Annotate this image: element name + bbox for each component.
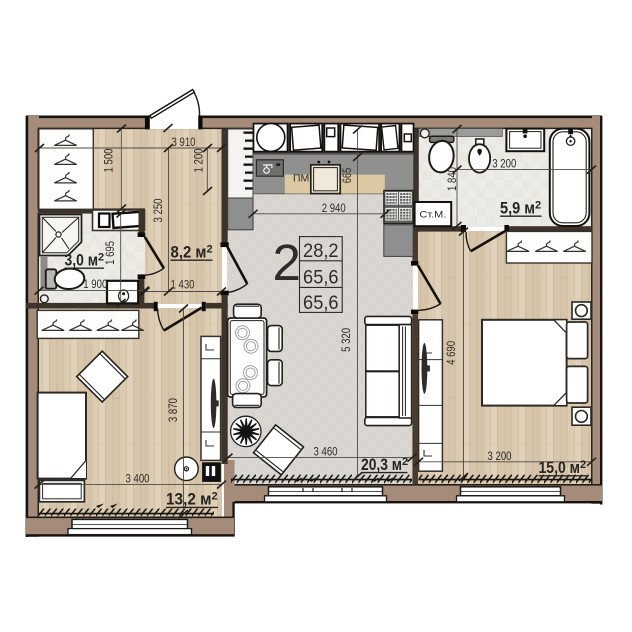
- svg-text:Ст.М.: Ст.М.: [419, 210, 446, 221]
- svg-text:3 200: 3 200: [488, 449, 512, 463]
- svg-text:65,6: 65,6: [303, 292, 339, 314]
- svg-text:3 870: 3 870: [166, 398, 180, 422]
- svg-text:3 250: 3 250: [151, 198, 165, 222]
- svg-text:3 910: 3 910: [172, 135, 196, 149]
- svg-text:28,2: 28,2: [303, 240, 339, 262]
- svg-text:ПМ: ПМ: [293, 173, 309, 185]
- svg-text:4 690: 4 690: [444, 341, 458, 365]
- svg-text:15,0 м2: 15,0 м2: [539, 458, 587, 477]
- svg-text:8,2 м2: 8,2 м2: [171, 242, 213, 261]
- svg-text:1 840: 1 840: [445, 167, 459, 191]
- svg-text:1 900: 1 900: [83, 277, 107, 291]
- svg-text:3 400: 3 400: [126, 472, 150, 486]
- svg-text:5 320: 5 320: [339, 328, 353, 352]
- svg-text:2 940: 2 940: [322, 201, 346, 215]
- svg-text:1 430: 1 430: [171, 278, 195, 292]
- svg-text:3 460: 3 460: [314, 445, 338, 459]
- svg-text:2: 2: [273, 234, 301, 291]
- svg-text:20,3 м2: 20,3 м2: [361, 455, 408, 474]
- svg-text:3 200: 3 200: [492, 157, 516, 171]
- svg-text:5,9 м2: 5,9 м2: [500, 198, 541, 217]
- svg-text:1 500: 1 500: [102, 148, 116, 172]
- svg-text:13,2 м2: 13,2 м2: [166, 490, 218, 509]
- svg-text:65,6: 65,6: [303, 267, 339, 289]
- svg-text:1 695: 1 695: [103, 241, 117, 265]
- svg-text:1 200: 1 200: [192, 148, 206, 172]
- svg-text:665: 665: [340, 168, 354, 184]
